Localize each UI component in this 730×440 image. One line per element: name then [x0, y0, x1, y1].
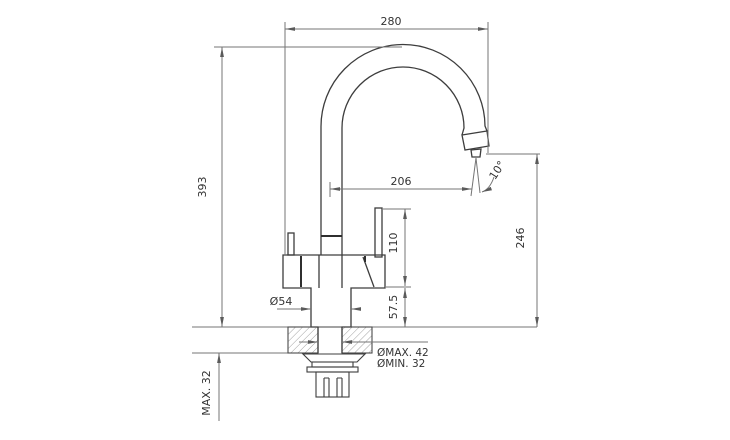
- threaded-shank: [316, 372, 349, 397]
- dim-spout-span: 280: [285, 15, 488, 255]
- faucet-outline: [283, 44, 489, 327]
- dim-label-246: 246: [514, 228, 527, 249]
- dim-label-57-5: 57.5: [387, 295, 400, 320]
- nozzle-tip: [471, 149, 481, 157]
- dim-total-height: 393: [196, 47, 402, 327]
- dim-lever-height: 110: [383, 209, 411, 287]
- dim-label-54: Ø54: [270, 295, 293, 308]
- dim-label-393: 393: [196, 177, 209, 198]
- mounting-washer: [303, 354, 365, 362]
- aerator: [462, 131, 489, 150]
- dim-body-diameter: Ø54: [270, 295, 361, 309]
- dim-stream-angle: 10°: [471, 158, 508, 196]
- dim-base-to-counter: 57.5: [387, 288, 405, 327]
- countertop-section: [192, 327, 537, 353]
- dim-label-hole-min: ØMIN. 32: [377, 358, 425, 370]
- mounting-flange: [307, 367, 358, 372]
- counter-hatch-left: [288, 327, 318, 353]
- spout-inner-edge: [342, 67, 464, 255]
- faucet-dimension-drawing: 280 393 206 10° 246 110 57.5: [0, 0, 730, 440]
- dim-label-max32: MAX. 32: [200, 370, 213, 416]
- stream-line-left: [471, 158, 476, 196]
- technical-drawing-canvas: 280 393 206 10° 246 110 57.5: [0, 0, 730, 440]
- mounting-hardware: [303, 354, 365, 397]
- stream-line-right: [476, 158, 480, 193]
- counter-hatch-right: [342, 327, 372, 353]
- faucet-body: [283, 255, 385, 327]
- dim-label-110: 110: [387, 233, 400, 254]
- dim-counter-thickness: MAX. 32: [200, 353, 219, 421]
- dim-label-280: 280: [381, 15, 402, 28]
- right-lever-handle: [375, 208, 382, 257]
- dim-label-206: 206: [391, 175, 412, 188]
- shank-slots: [324, 378, 342, 397]
- mounting-collar: [312, 362, 353, 367]
- left-handle: [288, 233, 294, 255]
- spout-outer-edge: [321, 44, 487, 255]
- dim-label-10deg: 10°: [487, 159, 509, 182]
- dim-spout-reach: 206: [330, 175, 472, 197]
